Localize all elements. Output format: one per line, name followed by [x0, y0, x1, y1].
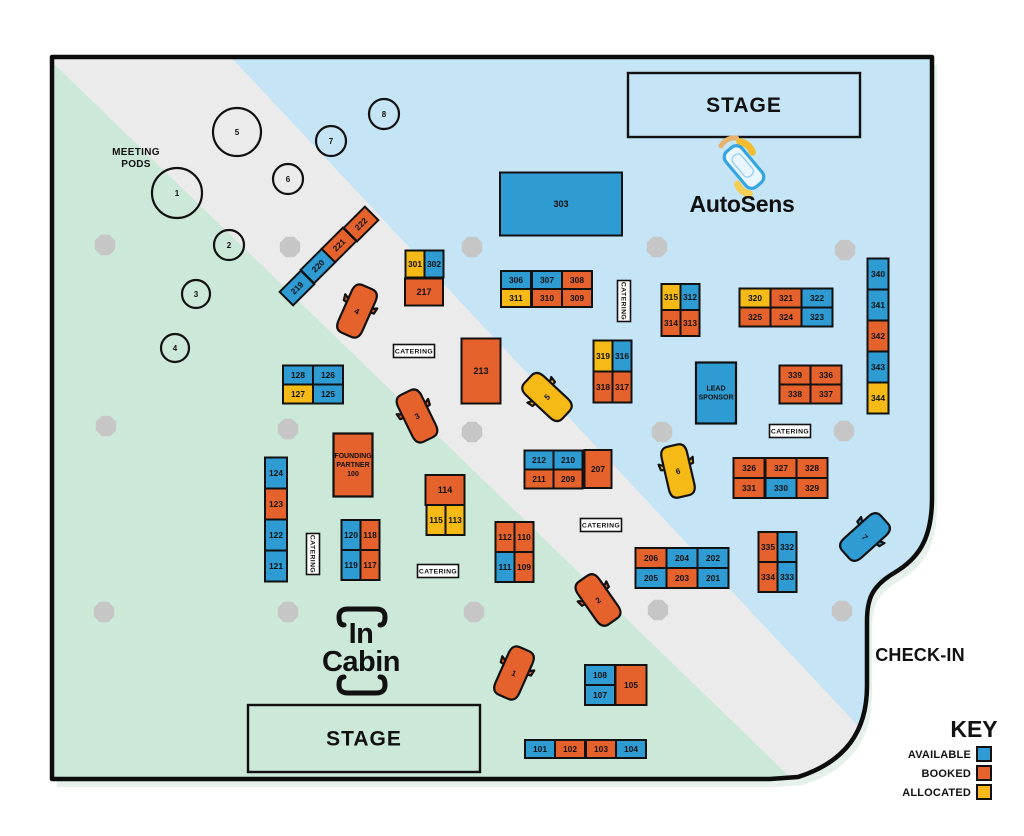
- booth-307: 307: [532, 271, 562, 289]
- pillar-icon: [652, 422, 672, 442]
- labeled-booth: LEADSPONSOR: [696, 363, 736, 424]
- pillar-icon: [647, 237, 667, 257]
- booth-344: 344: [868, 383, 889, 414]
- booth-320: 320: [740, 289, 771, 308]
- labeled-booth: FOUNDINGPARTNER100: [334, 434, 373, 497]
- booth-331: 331: [734, 478, 765, 498]
- booth-338: 338: [780, 385, 811, 404]
- booth-112-number: 112: [498, 532, 512, 542]
- booth-311: 311: [501, 289, 531, 307]
- booth-217: 217: [405, 279, 443, 306]
- booth-339: 339: [780, 366, 811, 385]
- booth-207-number: 207: [591, 464, 605, 474]
- booth-114: 114: [426, 475, 465, 505]
- booth-323: 323: [802, 308, 833, 327]
- booth-336-number: 336: [819, 370, 833, 380]
- booth-217-number: 217: [416, 287, 431, 297]
- pillar-icon: [94, 602, 114, 622]
- booth-322-number: 322: [810, 293, 824, 303]
- booth-128-number: 128: [291, 370, 305, 380]
- booth-318-number: 318: [596, 382, 610, 392]
- booth-340-number: 340: [871, 269, 885, 279]
- booth-306-number: 306: [509, 275, 523, 285]
- catering-text: CATERING: [582, 522, 620, 529]
- incabin-wordmark: Cabin: [322, 646, 400, 678]
- pillar-icon: [278, 602, 298, 622]
- booth-326-number: 326: [742, 463, 756, 473]
- booth-210: 210: [554, 451, 583, 470]
- booth-205: 205: [636, 568, 667, 588]
- meeting-pod-number: 1: [175, 189, 180, 198]
- booth-328: 328: [797, 458, 828, 478]
- booth-331-number: 331: [742, 483, 756, 493]
- catering-label: CATERING: [394, 345, 435, 358]
- meeting-pod-number: 8: [382, 110, 387, 119]
- booth-205-number: 205: [644, 573, 658, 583]
- booth-312-number: 312: [683, 292, 697, 302]
- booth-330-number: 330: [774, 483, 788, 493]
- booth-126: 126: [313, 366, 343, 385]
- catering-text: CATERING: [395, 348, 433, 355]
- booth-333: 333: [778, 562, 797, 592]
- booth-316: 316: [613, 341, 632, 372]
- booth-120-number: 120: [344, 530, 358, 540]
- meeting-pod-number: 3: [194, 290, 199, 299]
- booth-339-number: 339: [788, 370, 802, 380]
- booth-332-number: 332: [780, 542, 794, 552]
- meeting-pod-number: 5: [235, 128, 240, 137]
- booth-121-number: 121: [269, 561, 283, 571]
- booth-206-number: 206: [644, 553, 658, 563]
- booth-301-number: 301: [408, 259, 422, 269]
- booth-321-number: 321: [779, 293, 793, 303]
- booth-103: 103: [586, 740, 616, 758]
- legend-swatch-allocated: [977, 785, 991, 799]
- booth-203-number: 203: [675, 573, 689, 583]
- booth-302: 302: [425, 251, 444, 278]
- booth-310-number: 310: [540, 293, 554, 303]
- booth-117-number: 117: [363, 560, 377, 570]
- booth-302-number: 302: [427, 259, 441, 269]
- booth-122-number: 122: [269, 530, 283, 540]
- booth-343-number: 343: [871, 362, 885, 372]
- booth-127: 127: [283, 385, 313, 404]
- autosens-wordmark: AutoSens: [690, 191, 795, 217]
- booth-326: 326: [734, 458, 765, 478]
- catering-label: CATERING: [770, 425, 811, 438]
- booth-309-number: 309: [570, 293, 584, 303]
- booth-201: 201: [698, 568, 729, 588]
- labeled-booth-line: FOUNDING: [334, 453, 372, 460]
- booth-122: 122: [265, 520, 287, 551]
- booth-102: 102: [555, 740, 585, 758]
- booth-113: 113: [446, 505, 465, 535]
- booth-324-number: 324: [779, 312, 793, 322]
- booth-124-number: 124: [269, 468, 283, 478]
- check-in-label: CHECK-IN: [875, 645, 965, 665]
- booth-202: 202: [698, 548, 729, 568]
- booth-320-number: 320: [748, 293, 762, 303]
- booth-107-number: 107: [593, 690, 607, 700]
- pillar-icon: [278, 419, 298, 439]
- pillar-icon: [832, 601, 852, 621]
- legend-label-booked: BOOKED: [922, 768, 971, 780]
- booth-209-number: 209: [561, 474, 575, 484]
- meeting-pod-number: 2: [227, 241, 232, 250]
- booth-206: 206: [636, 548, 667, 568]
- pillar-icon: [648, 600, 668, 620]
- booth-112: 112: [496, 522, 515, 552]
- booth-315: 315: [662, 284, 681, 310]
- booth-212: 212: [525, 451, 554, 470]
- booth-207: 207: [585, 450, 612, 488]
- labeled-booth-line: PARTNER: [336, 462, 369, 469]
- booth-324: 324: [771, 308, 802, 327]
- booth-336: 336: [811, 366, 842, 385]
- pillar-icon: [96, 416, 116, 436]
- booth-213: 213: [462, 339, 501, 404]
- booth-111: 111: [496, 552, 515, 582]
- booth-317: 317: [613, 372, 632, 403]
- booth-329: 329: [797, 478, 828, 498]
- labeled-booth-line: LEAD: [706, 386, 725, 393]
- booth-332: 332: [778, 532, 797, 562]
- booth-123: 123: [265, 489, 287, 520]
- booth-319: 319: [594, 341, 613, 372]
- booth-126-number: 126: [321, 370, 335, 380]
- pillar-icon: [834, 421, 854, 441]
- labeled-booth-line: 100: [347, 471, 359, 478]
- booth-303-number: 303: [553, 199, 568, 209]
- booth-212-number: 212: [532, 455, 546, 465]
- booth-111-number: 111: [498, 562, 511, 572]
- booth-204: 204: [667, 548, 698, 568]
- booth-109-number: 109: [517, 562, 531, 572]
- pillar-icon: [462, 237, 482, 257]
- labeled-booth-box: [696, 363, 736, 424]
- booth-118: 118: [361, 520, 380, 550]
- booth-328-number: 328: [805, 463, 819, 473]
- meeting-pods-label: MEETING: [112, 147, 160, 158]
- booth-311-number: 311: [509, 293, 523, 303]
- booth-104: 104: [616, 740, 646, 758]
- catering-label: CATERING: [618, 281, 631, 322]
- stage-label: STAGE: [326, 728, 402, 751]
- pillar-icon: [280, 237, 300, 257]
- booth-313-number: 313: [683, 318, 697, 328]
- booth-341: 341: [868, 290, 889, 321]
- pillar-icon: [835, 240, 855, 260]
- booth-342-number: 342: [871, 331, 885, 341]
- booth-201-number: 201: [706, 573, 720, 583]
- catering-text: CATERING: [620, 282, 627, 320]
- booth-344-number: 344: [871, 393, 885, 403]
- stage-label: STAGE: [706, 94, 782, 117]
- booth-117: 117: [361, 550, 380, 580]
- catering-text: CATERING: [309, 535, 316, 573]
- booth-327-number: 327: [774, 463, 788, 473]
- legend-swatch-available: [977, 747, 991, 761]
- booth-314: 314: [662, 310, 681, 336]
- booth-211: 211: [525, 470, 554, 489]
- booth-341-number: 341: [871, 300, 885, 310]
- booth-108-number: 108: [593, 670, 607, 680]
- catering-label: CATERING: [307, 534, 320, 575]
- booth-104-number: 104: [624, 744, 638, 754]
- booth-101-number: 101: [533, 744, 547, 754]
- booth-113-number: 113: [448, 515, 462, 525]
- booth-107: 107: [585, 685, 615, 705]
- meeting-pod-number: 7: [329, 137, 334, 146]
- booth-127-number: 127: [291, 389, 305, 399]
- booth-333-number: 333: [780, 572, 794, 582]
- catering-label: CATERING: [581, 519, 622, 532]
- booth-204-number: 204: [675, 553, 689, 563]
- booth-105: 105: [616, 665, 647, 705]
- booth-318: 318: [594, 372, 613, 403]
- booth-330: 330: [766, 478, 797, 498]
- booth-335: 335: [759, 532, 778, 562]
- booth-213-number: 213: [473, 366, 488, 376]
- meeting-pod-number: 4: [173, 344, 178, 353]
- booth-303: 303: [500, 173, 622, 236]
- booth-102-number: 102: [563, 744, 577, 754]
- floor-plan: STAGESTAGE12345678MEETINGPODS10110210310…: [0, 0, 1024, 836]
- booth-114-number: 114: [438, 485, 453, 495]
- booth-121: 121: [265, 551, 287, 582]
- booth-119: 119: [342, 550, 361, 580]
- booth-337: 337: [811, 385, 842, 404]
- booth-334-number: 334: [761, 572, 775, 582]
- booth-108: 108: [585, 665, 615, 685]
- booth-319-number: 319: [596, 351, 610, 361]
- booth-315-number: 315: [664, 292, 678, 302]
- booth-343: 343: [868, 352, 889, 383]
- booth-329-number: 329: [805, 483, 819, 493]
- booth-307-number: 307: [540, 275, 554, 285]
- booth-119-number: 119: [344, 560, 358, 570]
- booth-322: 322: [802, 289, 833, 308]
- key-title: KEY: [950, 716, 997, 742]
- catering-text: CATERING: [771, 428, 809, 435]
- booth-312: 312: [681, 284, 700, 310]
- booth-202-number: 202: [706, 553, 720, 563]
- legend-swatch-booked: [977, 766, 991, 780]
- booth-308: 308: [562, 271, 592, 289]
- pillar-icon: [464, 602, 484, 622]
- booth-335-number: 335: [761, 542, 775, 552]
- booth-325-number: 325: [748, 312, 762, 322]
- booth-124: 124: [265, 458, 287, 489]
- booth-310: 310: [532, 289, 562, 307]
- booth-314-number: 314: [664, 318, 678, 328]
- booth-209: 209: [554, 470, 583, 489]
- legend-label-available: AVAILABLE: [908, 749, 971, 761]
- labeled-booth-line: SPONSOR: [698, 395, 733, 402]
- booth-128: 128: [283, 366, 313, 385]
- booth-325: 325: [740, 308, 771, 327]
- booth-316-number: 316: [615, 351, 629, 361]
- booth-321: 321: [771, 289, 802, 308]
- booth-306: 306: [501, 271, 531, 289]
- booth-118-number: 118: [363, 530, 377, 540]
- booth-123-number: 123: [269, 499, 283, 509]
- booth-115: 115: [427, 505, 446, 535]
- booth-120: 120: [342, 520, 361, 550]
- pillar-icon: [95, 235, 115, 255]
- booth-338-number: 338: [788, 389, 802, 399]
- booth-342: 342: [868, 321, 889, 352]
- booth-308-number: 308: [570, 275, 584, 285]
- booth-327: 327: [766, 458, 797, 478]
- booth-337-number: 337: [819, 389, 833, 399]
- booth-101: 101: [525, 740, 555, 758]
- meeting-pod-number: 6: [286, 175, 291, 184]
- booth-323-number: 323: [810, 312, 824, 322]
- booth-125: 125: [313, 385, 343, 404]
- catering-label: CATERING: [418, 565, 459, 578]
- booth-110-number: 110: [517, 532, 531, 542]
- booth-211-number: 211: [532, 474, 546, 484]
- meeting-pods-label: PODS: [121, 159, 151, 170]
- booth-110: 110: [515, 522, 534, 552]
- booth-313: 313: [681, 310, 700, 336]
- booth-125-number: 125: [321, 389, 335, 399]
- booth-203: 203: [667, 568, 698, 588]
- catering-text: CATERING: [419, 568, 457, 575]
- booth-109: 109: [515, 552, 534, 582]
- booth-317-number: 317: [615, 382, 629, 392]
- booth-115-number: 115: [429, 515, 443, 525]
- booth-103-number: 103: [594, 744, 608, 754]
- booth-340: 340: [868, 259, 889, 290]
- booth-334: 334: [759, 562, 778, 592]
- floor-plan-page: STAGESTAGE12345678MEETINGPODS10110210310…: [0, 0, 1024, 836]
- pillar-icon: [462, 422, 482, 442]
- booth-105-number: 105: [624, 680, 638, 690]
- booth-309: 309: [562, 289, 592, 307]
- legend-label-allocated: ALLOCATED: [902, 787, 971, 799]
- booth-210-number: 210: [561, 455, 575, 465]
- booth-301: 301: [406, 251, 425, 278]
